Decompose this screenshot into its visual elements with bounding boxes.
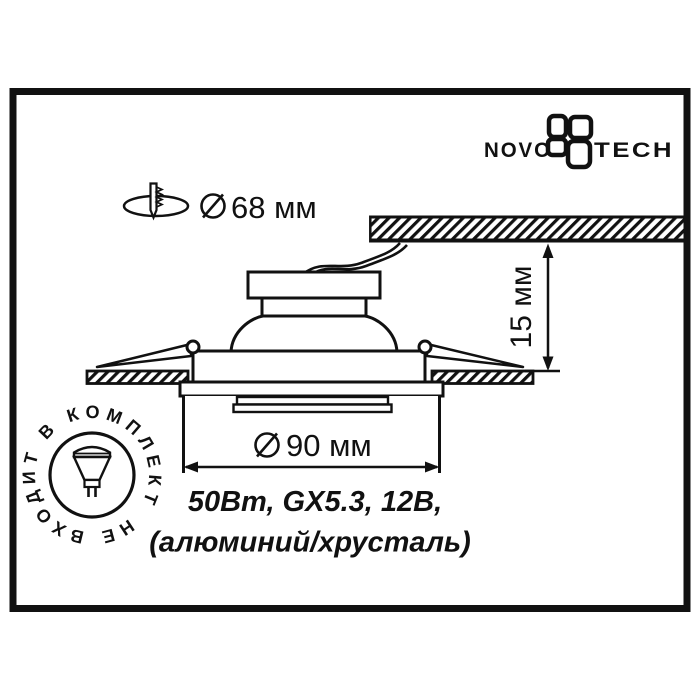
cutout-diameter-value: 68 мм xyxy=(231,190,317,225)
ceiling-hatch xyxy=(370,217,684,242)
drawing-page: 68 мм 15 мм 90 мм 50Вт, GX5.3, 12В, (алю… xyxy=(0,0,700,700)
dim15-arrow-up-icon xyxy=(543,244,554,259)
clip-pivot-left xyxy=(187,341,199,353)
ceiling-slab-icon xyxy=(370,216,684,243)
recess-dimension-value: 15 мм xyxy=(505,266,538,349)
clip-pivot-right xyxy=(419,341,431,353)
crystal-plate-lower xyxy=(234,405,392,413)
wire-icon xyxy=(303,243,407,274)
dimension-drawing: 68 мм 15 мм 90 мм 50Вт, GX5.3, 12В, (алю… xyxy=(0,0,700,700)
mr16-lamp-icon xyxy=(74,447,110,497)
mounting-ring xyxy=(193,351,425,382)
spec-line-2: (алюминий/хрусталь) xyxy=(149,527,471,559)
novotech-petal-mark-icon xyxy=(548,116,591,167)
lamp-holder xyxy=(248,272,380,298)
spring-clip-left-icon xyxy=(97,344,191,367)
cutout-hole-icon xyxy=(124,184,188,218)
logo-wordmark-left: NOVO xyxy=(484,138,552,162)
recess-dimension: 15 мм xyxy=(505,244,560,372)
logo-wordmark-right: TECH xyxy=(594,138,674,162)
spec-line-1: 50Вт, GX5.3, 12В, xyxy=(188,486,442,518)
fixture-dome xyxy=(231,316,397,352)
fixture-neck xyxy=(262,297,366,316)
ceiling-strip-right xyxy=(432,371,533,384)
trim-flange xyxy=(180,382,443,396)
cutout-dimension: 68 мм xyxy=(202,190,317,225)
dim15-arrow-down-icon xyxy=(543,357,554,372)
outer-diameter-value: 90 мм xyxy=(286,428,372,463)
screw-shaft-icon xyxy=(151,184,157,218)
lamp-not-included-stamp: НЕ ВХОДИТ В КОМПЛЕКТ xyxy=(19,402,165,548)
novotech-logo: NOVO TECH xyxy=(484,116,674,167)
ceiling-strip-left xyxy=(87,371,188,384)
